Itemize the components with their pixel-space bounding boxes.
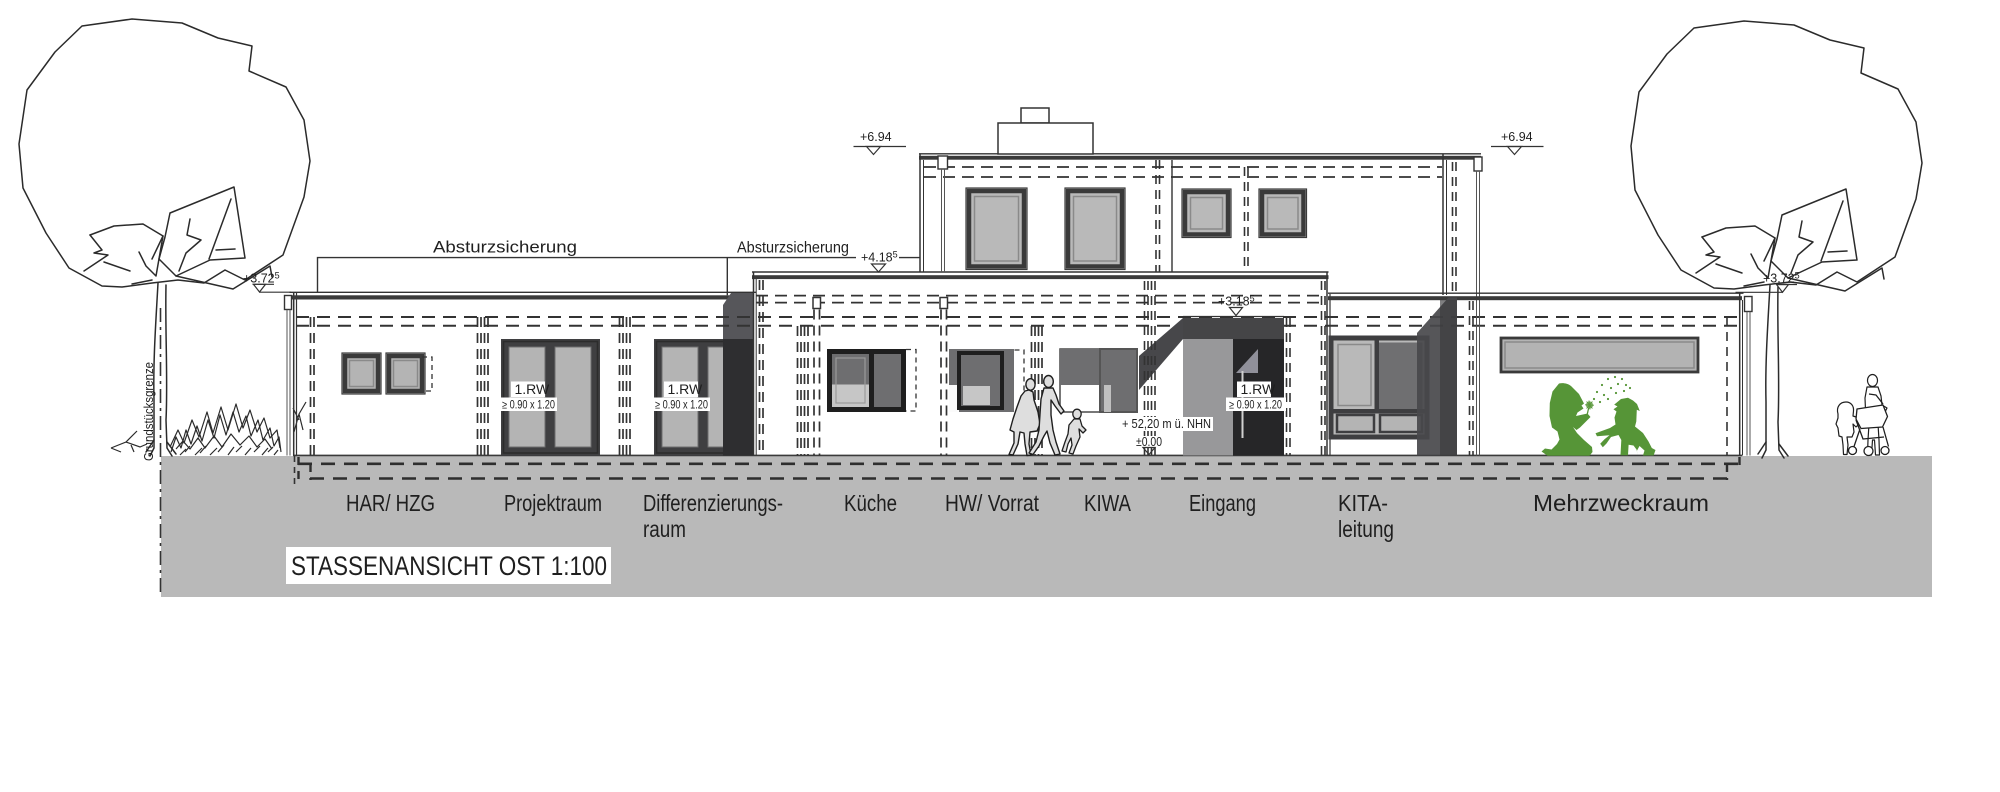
svg-text:±0.00: ±0.00 [1136, 434, 1162, 449]
svg-text:+6.94: +6.94 [1501, 130, 1533, 144]
svg-text:+3.185: +3.185 [1218, 294, 1255, 309]
svg-text:raum: raum [643, 516, 686, 542]
svg-text:Projektraum: Projektraum [504, 490, 602, 516]
svg-text:Küche: Küche [844, 490, 897, 516]
svg-text:+3.725: +3.725 [1763, 271, 1800, 286]
svg-text:+4.185: +4.185 [861, 250, 898, 265]
svg-text:STASSENANSICHT OST 1:100: STASSENANSICHT OST 1:100 [291, 551, 607, 581]
svg-text:KITA-: KITA- [1338, 490, 1388, 516]
svg-text:+ 52,20 m ü. NHN: + 52,20 m ü. NHN [1122, 416, 1211, 431]
svg-text:≥ 0.90 x 1.20: ≥ 0.90 x 1.20 [655, 400, 708, 412]
svg-text:+6.94: +6.94 [860, 130, 892, 144]
svg-text:HW/ Vorrat: HW/ Vorrat [945, 490, 1040, 516]
svg-text:≥ 0.90 x 1.20: ≥ 0.90 x 1.20 [1229, 400, 1282, 412]
svg-text:1.RW: 1.RW [515, 381, 551, 397]
svg-text:+3.725: +3.725 [243, 271, 280, 286]
svg-text:≥ 0.90 x 1.20: ≥ 0.90 x 1.20 [502, 400, 555, 412]
svg-text:Mehrzweckraum: Mehrzweckraum [1533, 490, 1709, 516]
svg-text:leitung: leitung [1338, 516, 1394, 542]
svg-text:Eingang: Eingang [1189, 490, 1256, 516]
svg-text:Absturzsicherung: Absturzsicherung [433, 239, 577, 257]
svg-text:Grundstücksgrenze: Grundstücksgrenze [142, 362, 156, 461]
svg-text:1.RW: 1.RW [1241, 381, 1277, 397]
svg-text:Absturzsicherung: Absturzsicherung [737, 240, 849, 257]
svg-text:Differenzierungs-: Differenzierungs- [643, 490, 783, 516]
svg-text:KIWA: KIWA [1084, 490, 1132, 516]
svg-text:1.RW: 1.RW [668, 381, 704, 397]
svg-text:HAR/ HZG: HAR/ HZG [346, 490, 435, 516]
